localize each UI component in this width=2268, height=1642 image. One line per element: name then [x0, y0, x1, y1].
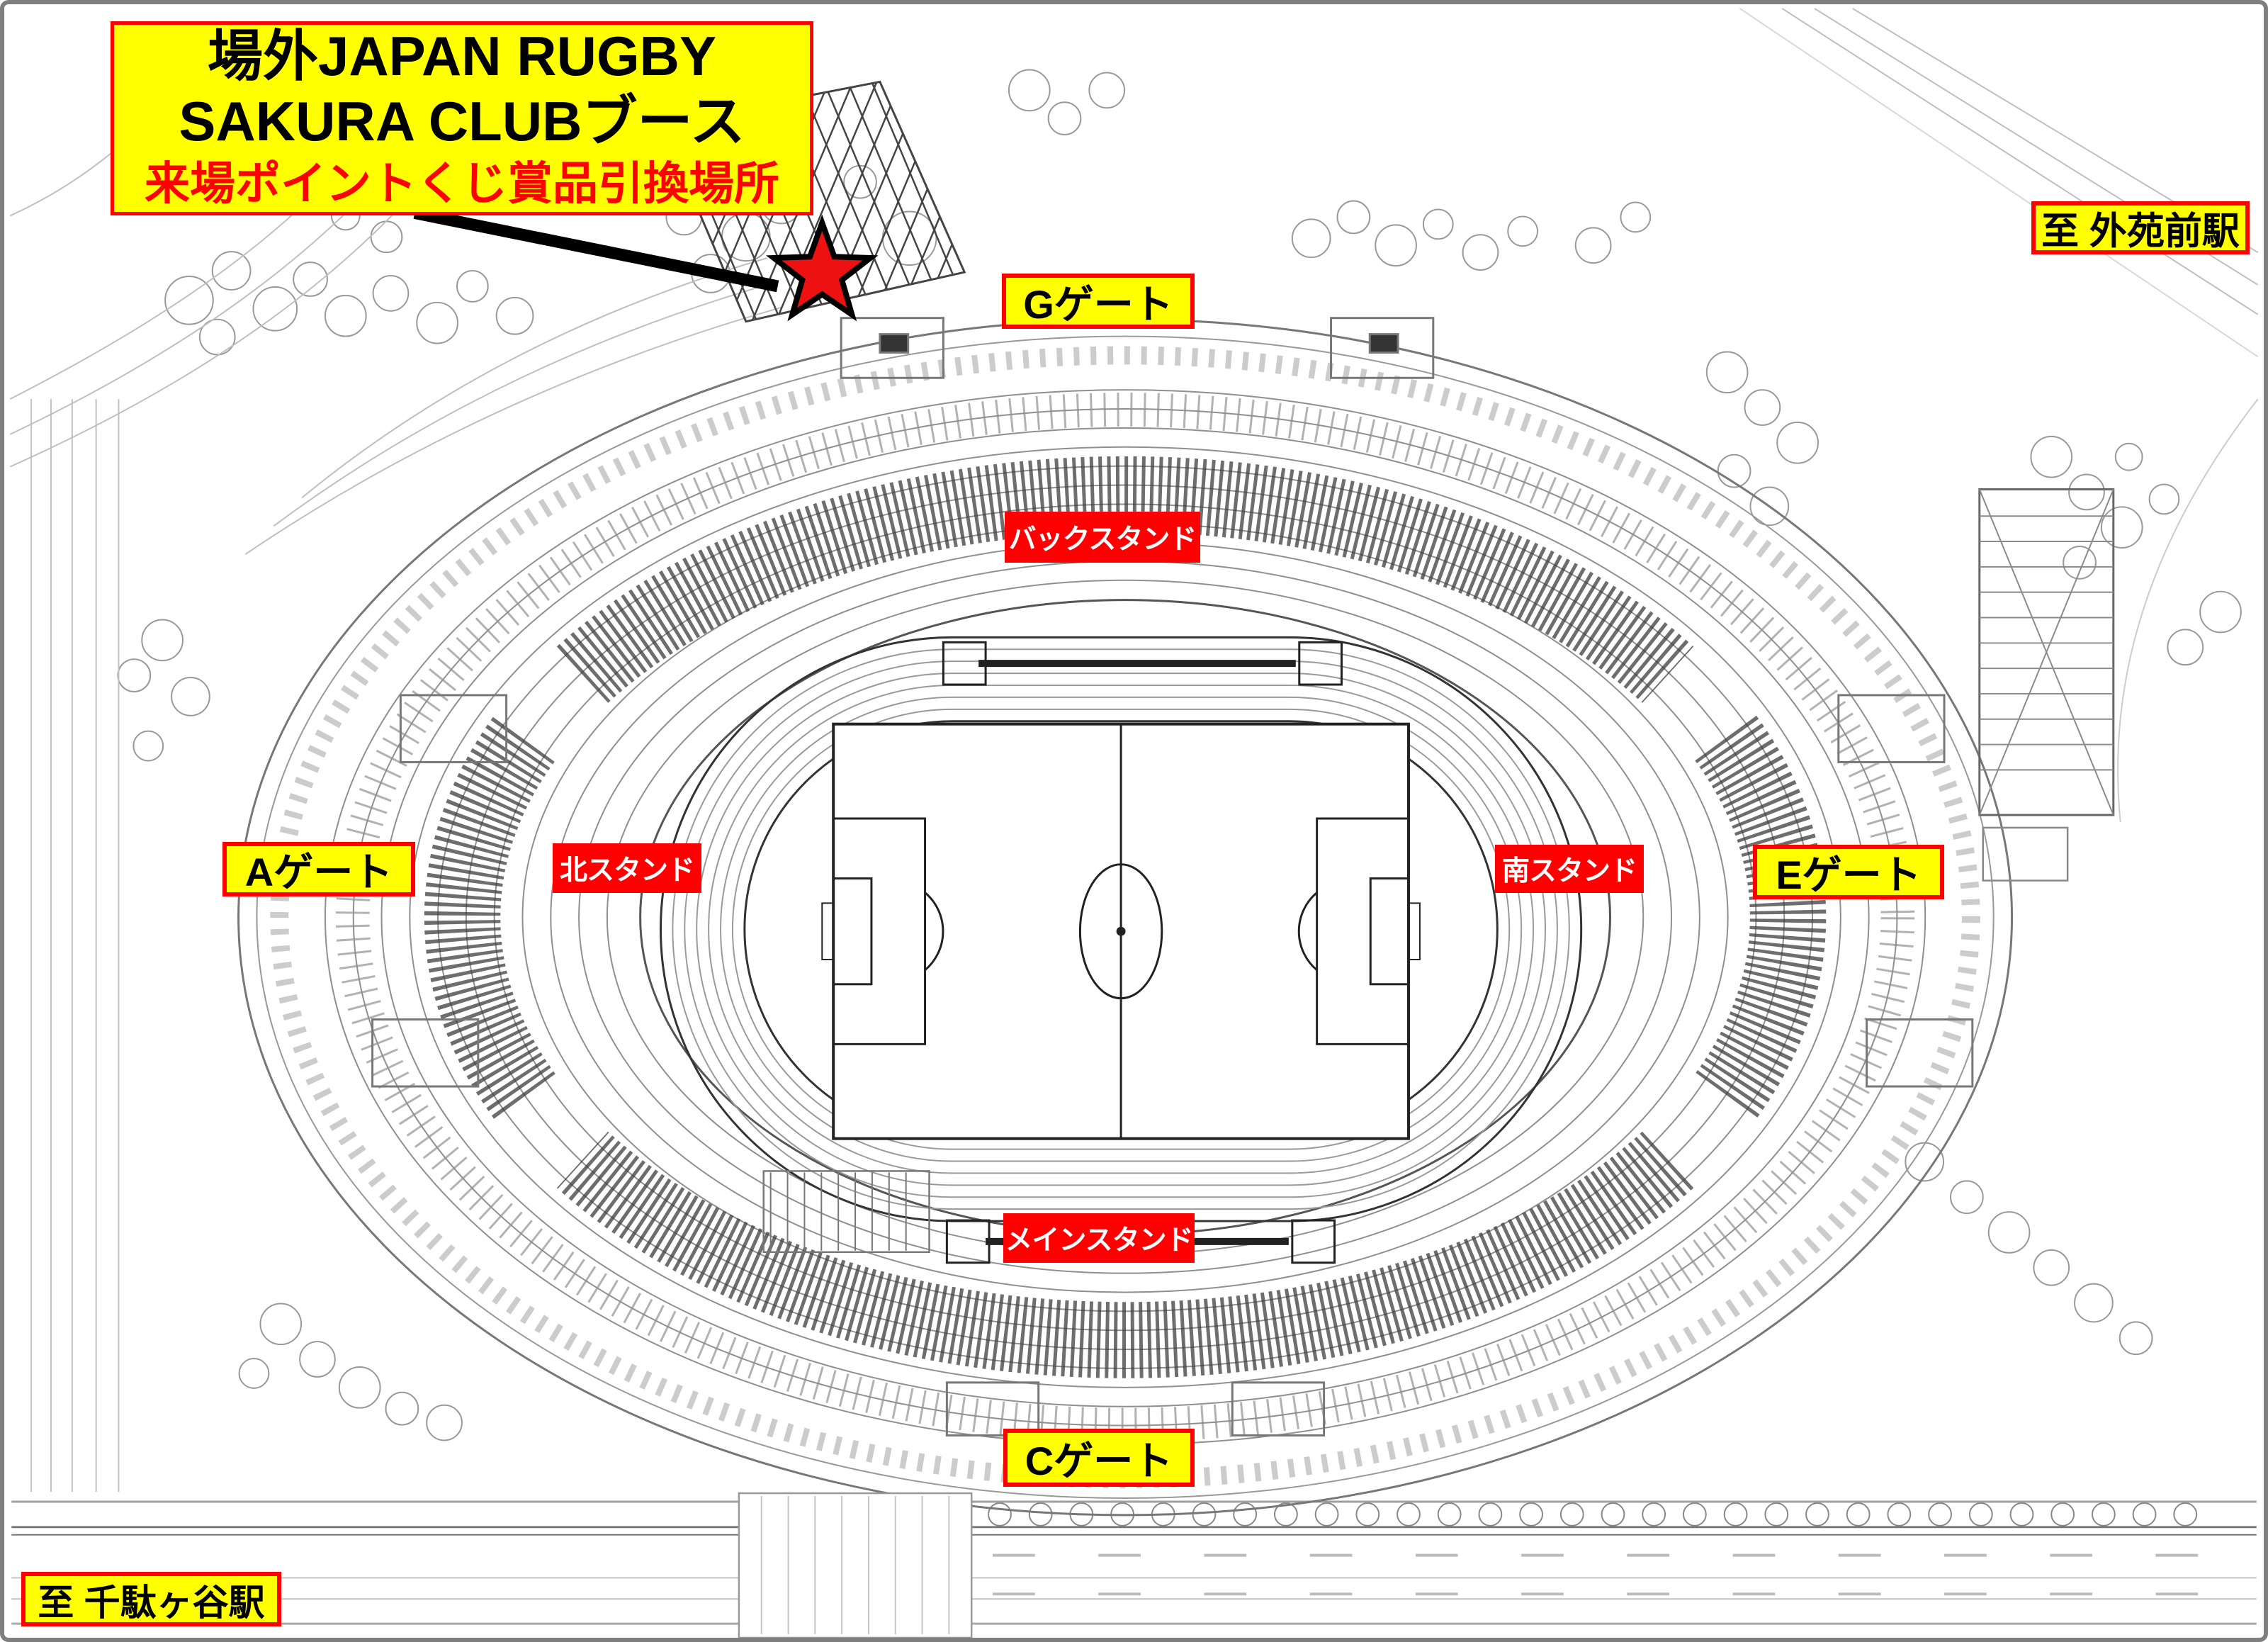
approach-bridge — [739, 1493, 971, 1638]
stand-label-main: メインスタンド — [1003, 1213, 1195, 1263]
booth-callout-line2: SAKURA CLUBブース — [179, 89, 745, 154]
booth-callout-line3: 来場ポイントくじ賞品引換場所 — [145, 154, 779, 213]
stand-label-south: 南スタンド — [1495, 845, 1644, 893]
booth-callout-line1: 場外JAPAN RUGBY — [208, 23, 716, 89]
gate-label-c: Cゲート — [1003, 1429, 1195, 1487]
gate-label-e: Eゲート — [1753, 845, 1944, 899]
gate-label-g: Gゲート — [1002, 274, 1195, 329]
gate-label-a: Aゲート — [222, 842, 415, 896]
callout-arrow — [414, 213, 777, 286]
station-label-gaiemmae: 至 外苑前駅 — [2031, 201, 2250, 254]
booth-callout: 場外JAPAN RUGBY SAKURA CLUBブース 来場ポイントくじ賞品引… — [111, 21, 813, 215]
stand-label-north: 北スタンド — [553, 843, 701, 893]
station-label-sendagaya: 至 千駄ヶ谷駅 — [21, 1572, 281, 1626]
pitch — [822, 724, 1420, 1139]
site-plan-drawing — [4, 4, 2264, 1638]
stadium-site-map: 場外JAPAN RUGBY SAKURA CLUBブース 来場ポイントくじ賞品引… — [0, 0, 2268, 1642]
stand-label-back: バックスタンド — [1005, 512, 1200, 563]
east-building — [1980, 489, 2114, 880]
